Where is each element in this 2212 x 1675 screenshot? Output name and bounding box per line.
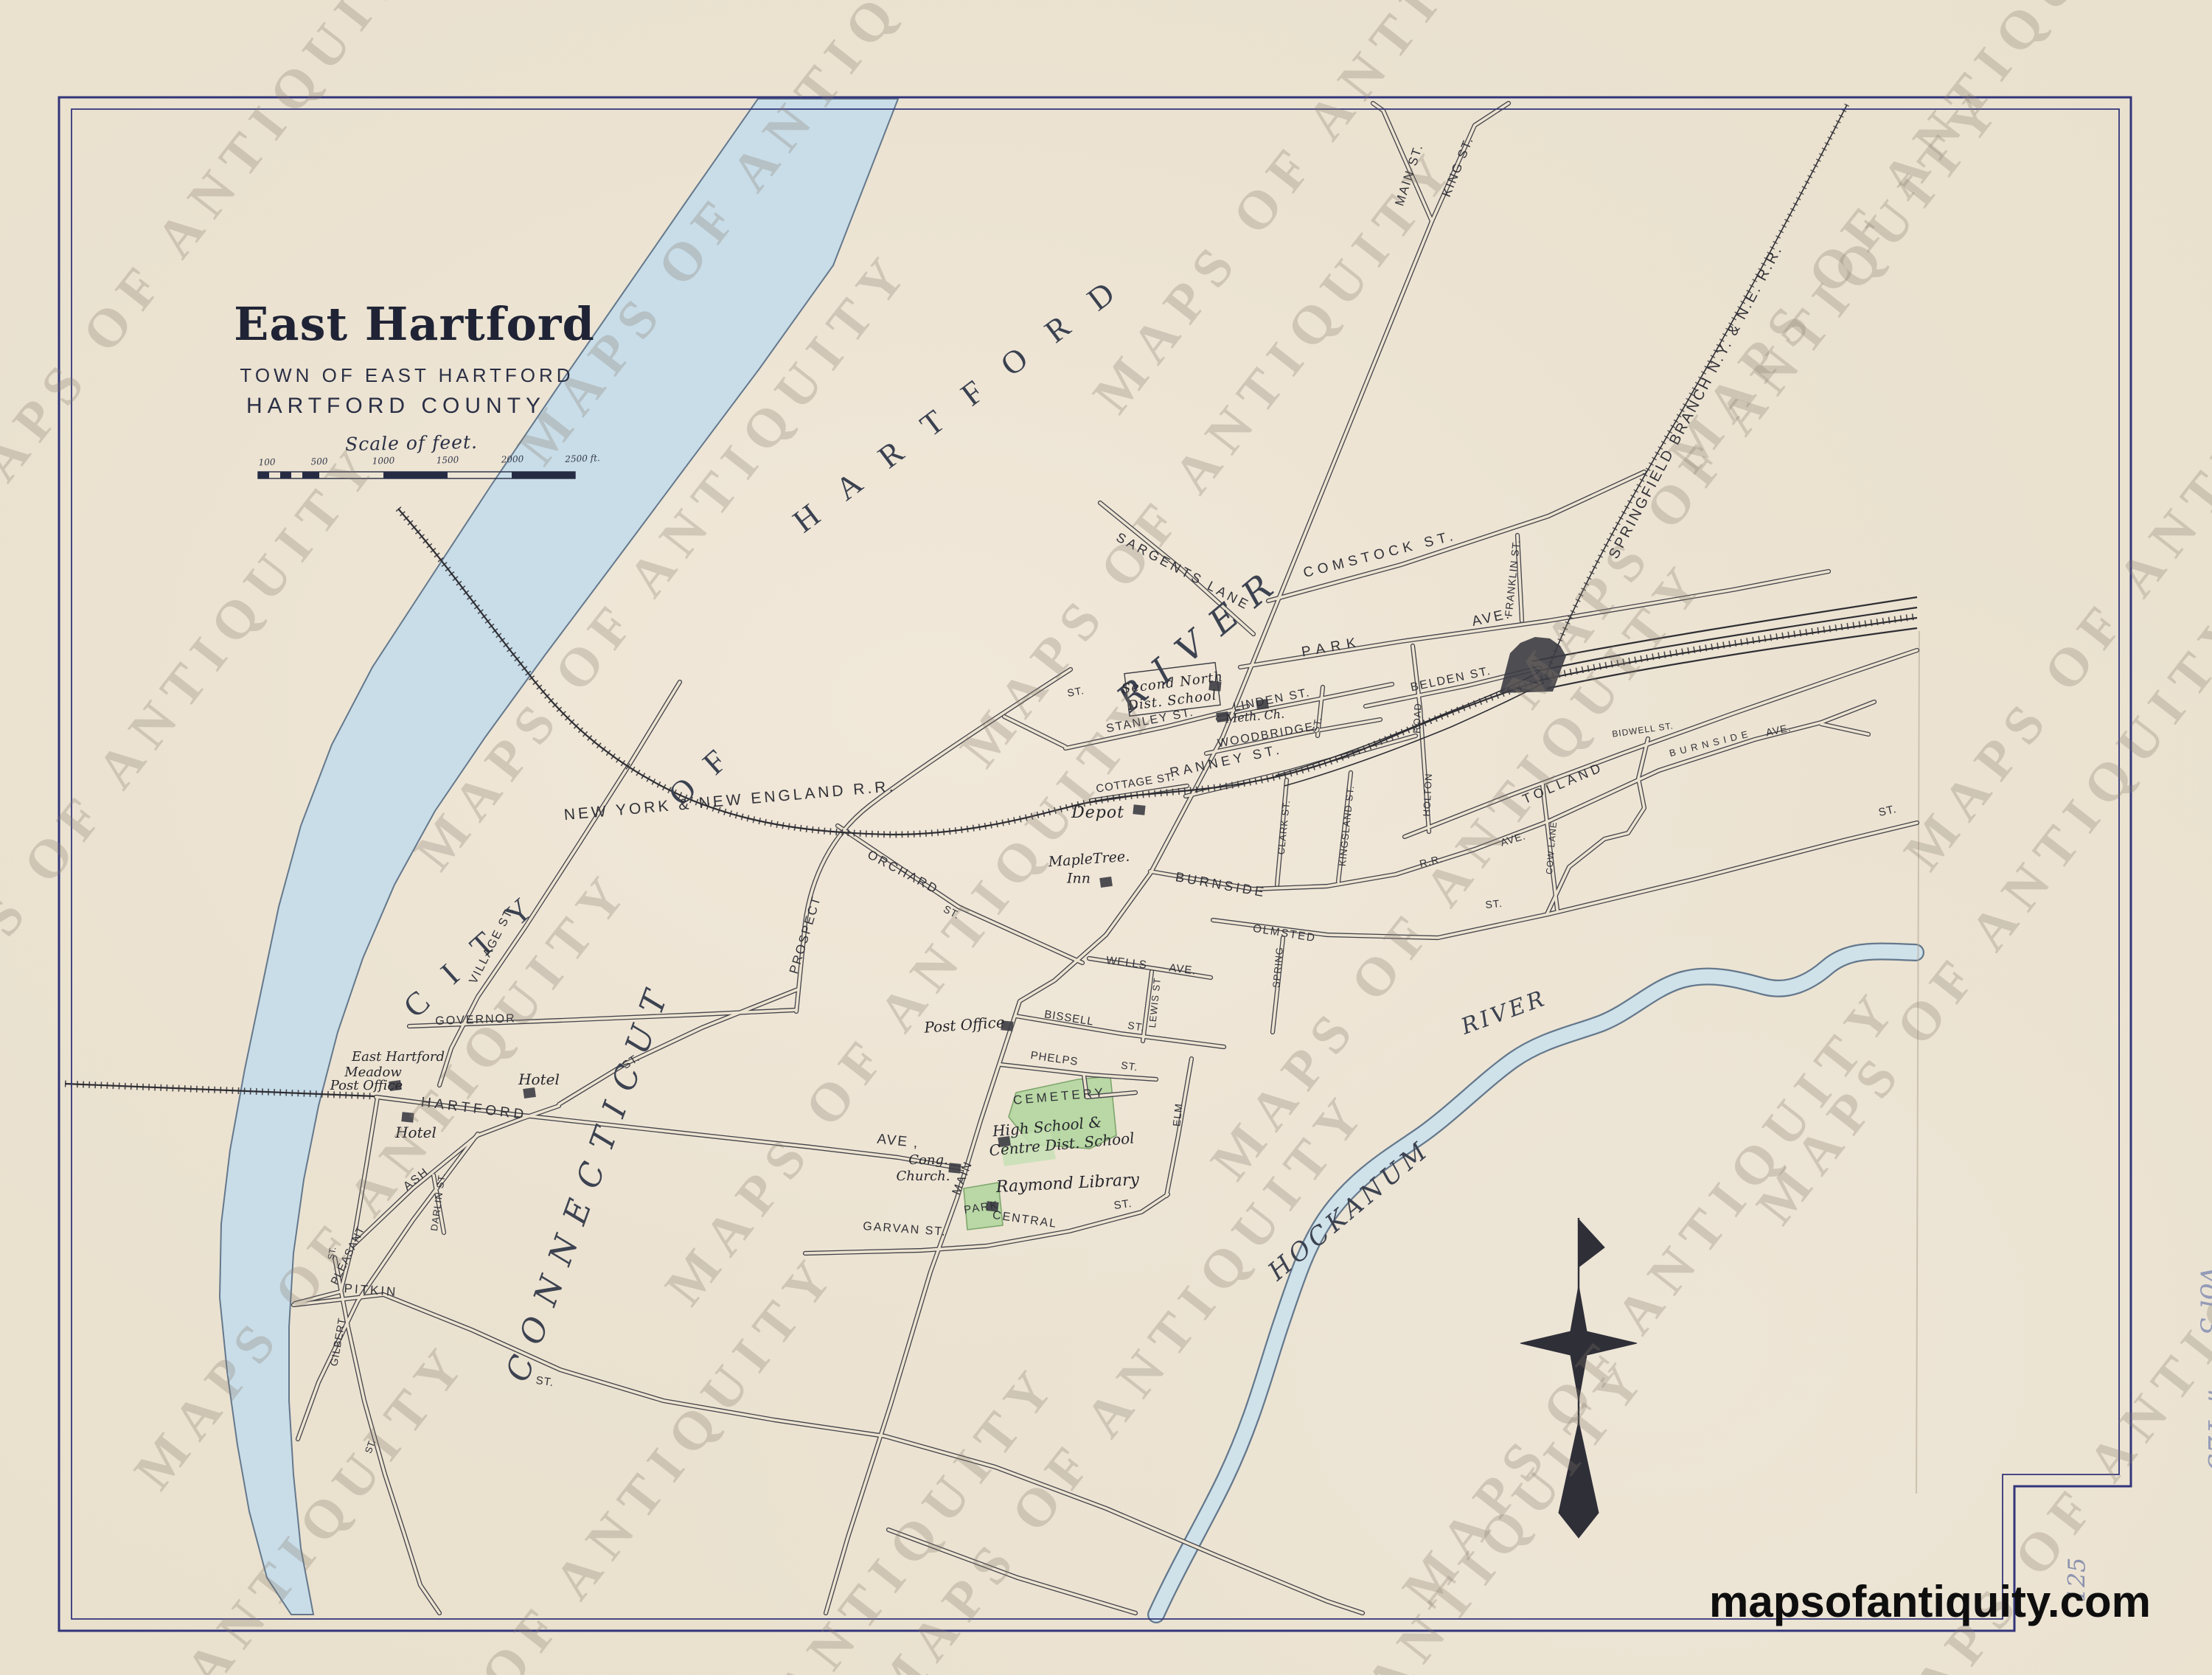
map-label: ST. xyxy=(1121,1059,1139,1072)
map-label: PITKIN xyxy=(344,1282,398,1298)
building-symbol xyxy=(1099,877,1113,888)
map-label: Post Office xyxy=(330,1079,403,1093)
handwritten-catalog-note: # 125 xyxy=(2202,1386,2212,1472)
map-label: ST. xyxy=(1311,716,1324,734)
map-label: East Hartford xyxy=(234,302,595,347)
map-label: HARTFORD COUNTY xyxy=(246,395,546,417)
map-label: 2000 xyxy=(501,454,524,464)
building-symbol xyxy=(523,1087,536,1098)
map-label: AVE. xyxy=(1169,962,1197,976)
map-label: TOWN OF EAST HARTFORD xyxy=(240,366,574,385)
building-symbol xyxy=(1133,804,1145,815)
scale-bar xyxy=(258,472,575,478)
map-label: HOLTON xyxy=(1422,773,1433,817)
map-label: Inn xyxy=(1067,872,1091,886)
map-label: ST. xyxy=(1113,1198,1133,1211)
site-credit: mapsofantiquity.com xyxy=(1709,1576,2151,1627)
map-label: 100 xyxy=(258,458,275,467)
handwritten-volume-note: Vol 3 xyxy=(2194,1265,2212,1335)
map-label: 1500 xyxy=(437,455,459,464)
map-label: ST. xyxy=(1485,898,1503,910)
map-label: ROAD xyxy=(1411,703,1422,734)
map-label: Hotel xyxy=(518,1072,560,1087)
map-label: ST. xyxy=(1127,1020,1145,1032)
map-label: ELM xyxy=(1171,1102,1183,1126)
map-label: East Hartford xyxy=(352,1051,445,1064)
map-label: ST. xyxy=(535,1375,555,1388)
map-label: Church. xyxy=(897,1170,950,1183)
antique-map-sheet: East HartfordTOWN OF EAST HARTFORDHARTFO… xyxy=(0,0,2212,1675)
map-label: Cong. xyxy=(908,1154,947,1167)
